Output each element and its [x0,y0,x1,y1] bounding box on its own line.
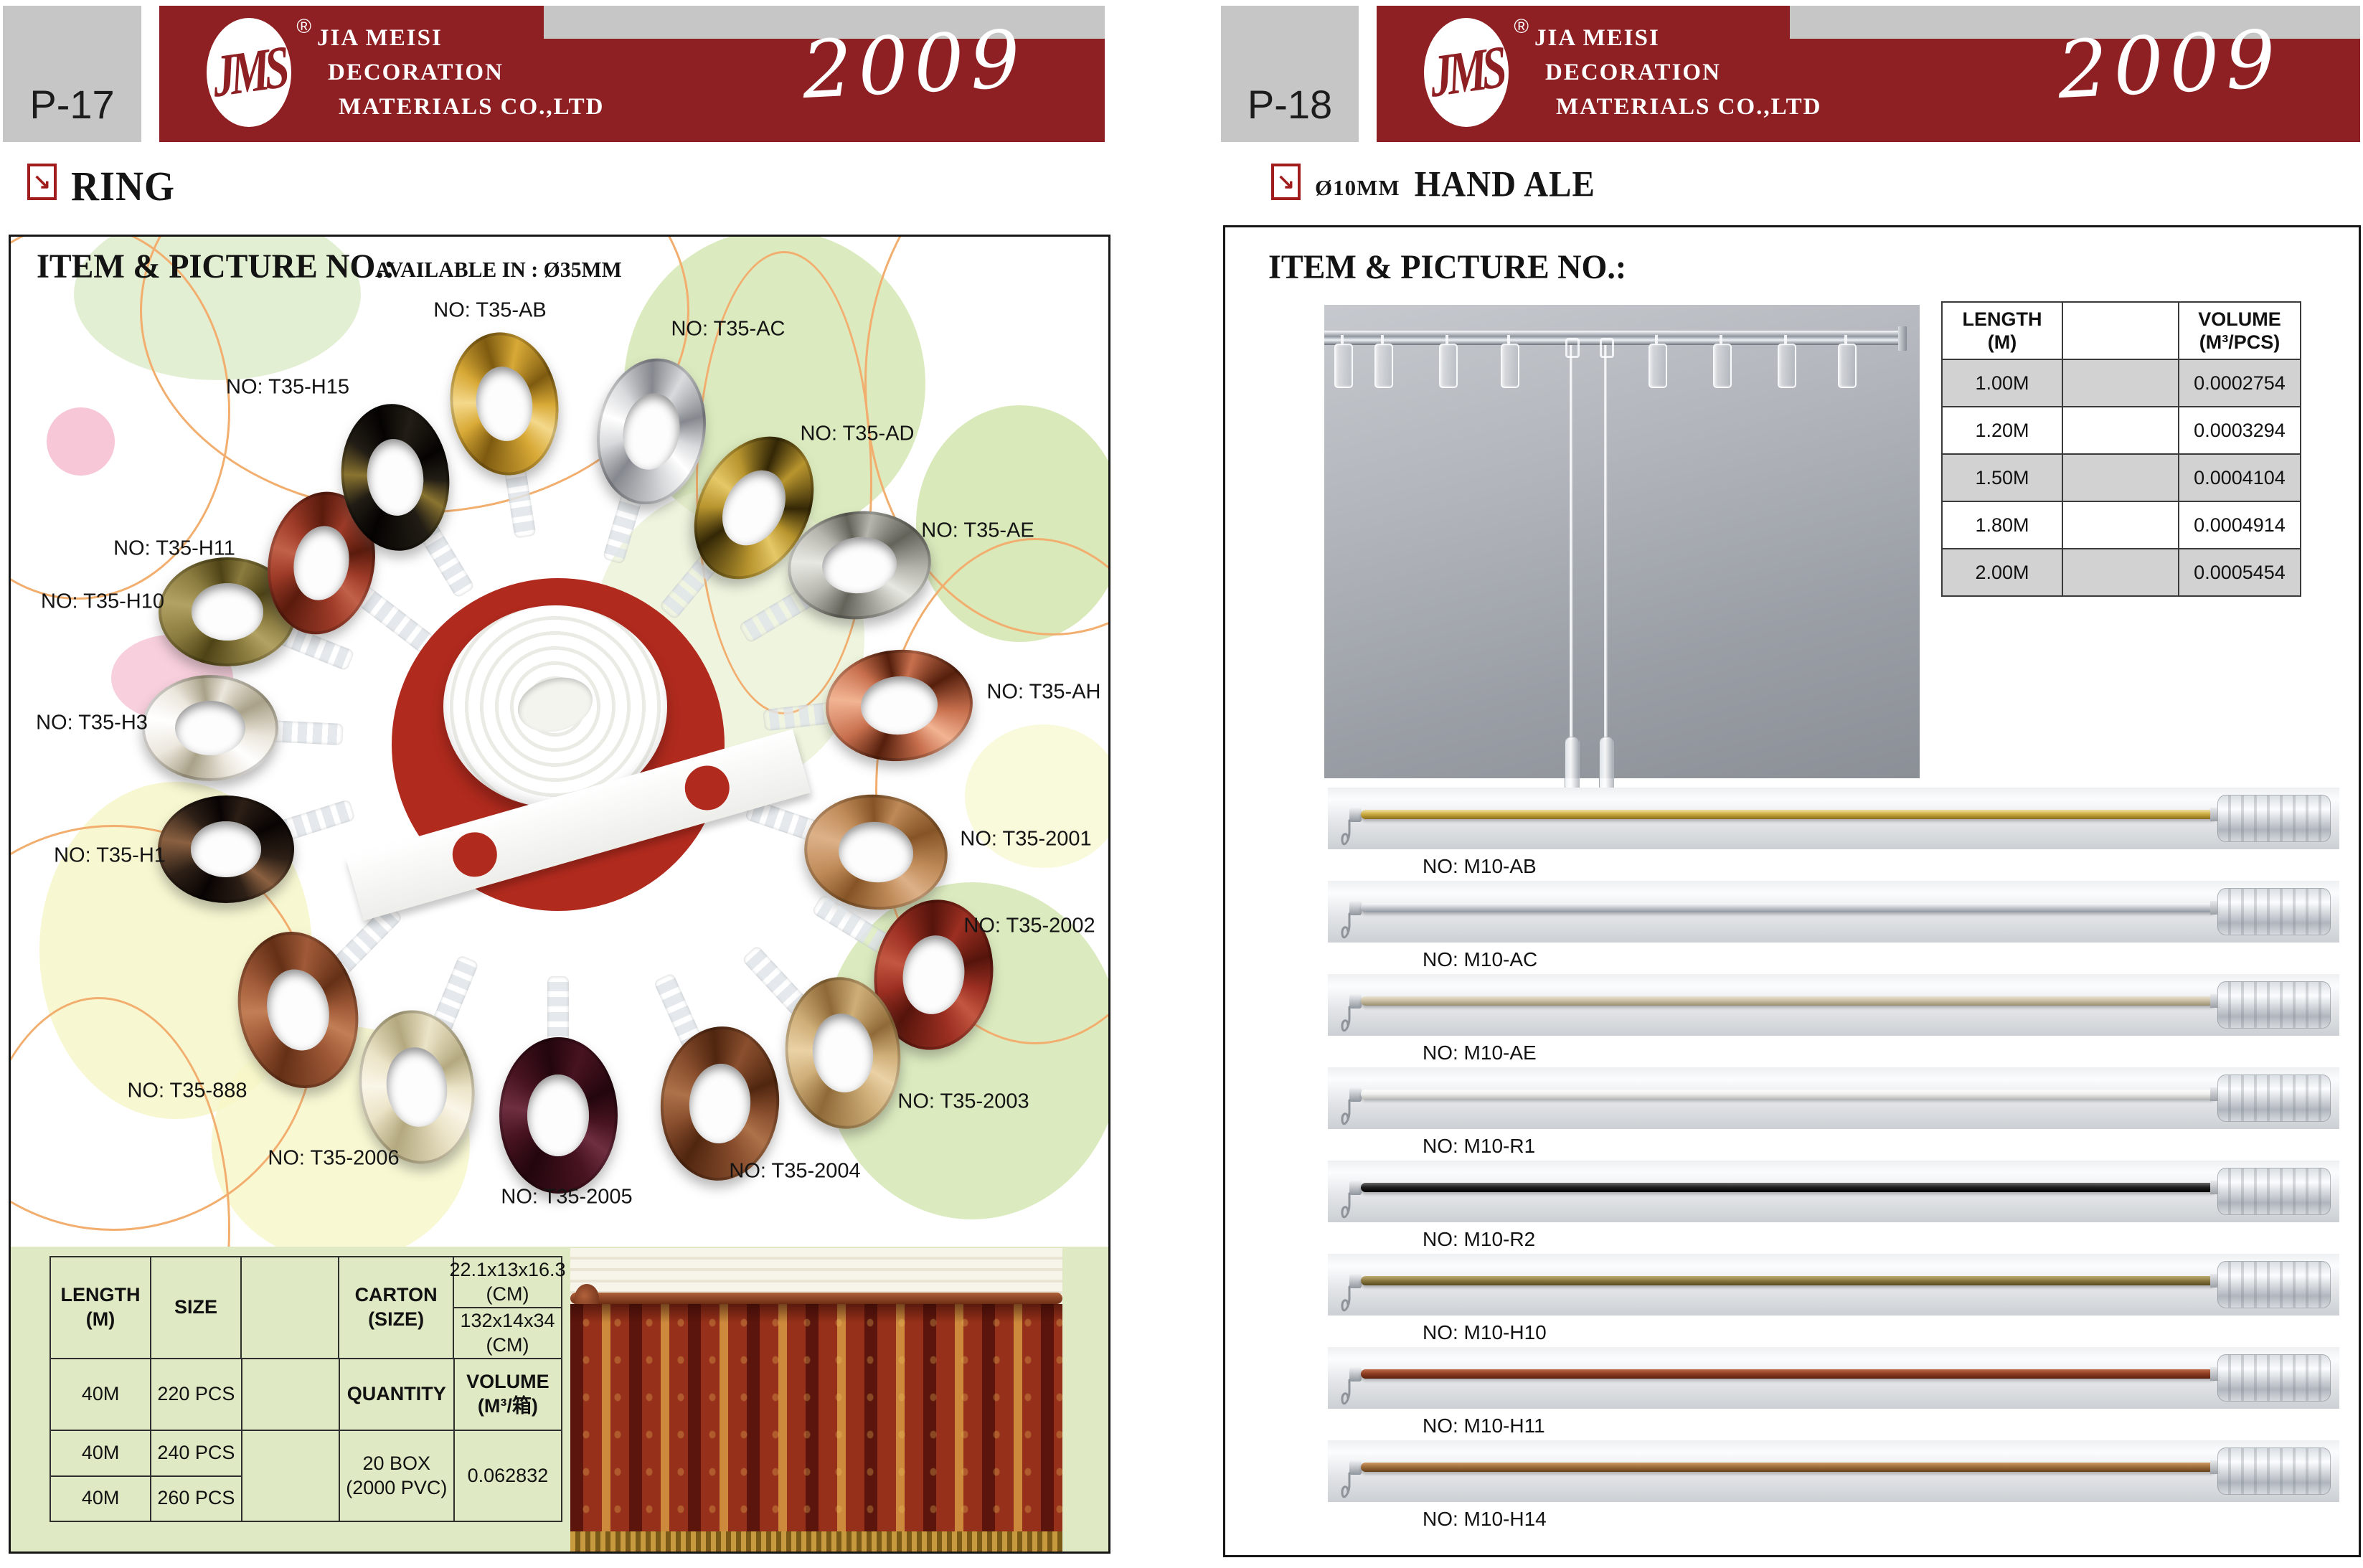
empty-cell [2062,406,2178,453]
ring-label: NO: T35-H11 [113,537,235,561]
registered-mark-icon: ® [296,15,311,38]
rod-label: NO: M10-R2 [1423,1228,1535,1251]
cell-length: 40M [51,1358,150,1430]
glider-hook [1713,344,1732,388]
rod-photo-strip [1328,881,2339,943]
panel-title: ITEM & PICTURE NO.: [1268,247,1626,287]
rod-item: NO: M10-AB [1328,788,2339,881]
metal-hook-icon [1339,1192,1358,1229]
curtain-photo [570,1248,1062,1552]
metal-hook-icon [1339,1379,1358,1416]
handale-panel: ITEM & PICTURE NO.: LENGTH (M) VOLUME (M… [1223,225,2361,1557]
metal-hook-icon [1339,912,1358,950]
cell-volume: 0.0003294 [2178,406,2300,453]
col-header-carton: CARTON (SIZE) [338,1257,453,1358]
rod-item: NO: M10-R2 [1328,1161,2339,1254]
logo-monogram: JMS [211,33,287,111]
logo-oval-icon: JMS [1424,18,1509,127]
metal-hook-icon [1339,819,1358,856]
registered-mark-icon: ® [1514,15,1529,38]
rod-photo-strip [1328,1254,2339,1316]
tape-photo [392,578,725,911]
ring-label: NO: T35-AC [671,318,785,341]
ring-label: NO: T35-H1 [54,844,166,868]
cell-size: 220 PCS [150,1358,240,1430]
glider-hook [1501,344,1519,388]
cell-size-stack: 240 PCS 260 PCS [150,1430,240,1521]
arrow-icon: ↘ [27,164,57,200]
acrylic-handle [2217,1261,2331,1308]
company-line: DECORATION [317,56,605,90]
company-line: MATERIALS CO.,LTD [1534,90,1822,125]
rod-shaft [1361,1183,2216,1192]
spec-band: LENGTH (M) SIZE CARTON (SIZE) 22.1x13x16… [11,1247,1108,1552]
section-header-ring: ↘ RING [27,164,175,204]
brand-logo: JMS ® [207,18,301,130]
company-line: MATERIALS CO.,LTD [317,90,605,125]
glider-hook [1778,344,1796,388]
track-wand-photo [1324,305,1920,778]
metal-hook-icon [1339,1472,1358,1509]
ring-label: NO: T35-AH [986,681,1100,704]
curtain-fabric [570,1304,1062,1531]
empty-cell [2062,303,2178,359]
ring-label: NO: T35-H3 [36,712,148,735]
ring-label: NO: T35-2006 [268,1147,399,1171]
logo-monogram: JMS [1428,33,1504,111]
rod-photo-strip [1328,1347,2339,1409]
ring-label: NO: T35-888 [127,1080,247,1103]
ring-label: NO: T35-2003 [897,1090,1029,1114]
catalog-year: 2009 [800,13,1028,116]
col-header-length: LENGTH (M) [51,1257,150,1358]
curtain-fringe [570,1531,1062,1552]
cell-length-stack: 40M 40M [51,1430,150,1521]
cell-length: 1.80M [1943,501,2062,548]
acrylic-handle [2217,888,2331,935]
length-volume-table: LENGTH (M) VOLUME (M³/PCS) 1.00M 0.00027… [1941,301,2301,597]
panel-subtitle: AVAILABLE IN : Ø35MM [375,257,622,283]
panel-title: ITEM & PICTURE NO.: [37,247,395,286]
rod-label: NO: M10-H14 [1423,1508,1547,1531]
metal-hook-icon [1339,1006,1358,1043]
company-line: JIA MEISI [317,22,605,56]
cell-length: 1.00M [1943,359,2062,406]
glider-hook [1649,344,1667,388]
cell-volume: 0.0002754 [2178,359,2300,406]
acrylic-handle [2217,1168,2331,1215]
company-line: DECORATION [1534,56,1822,90]
cell-length: 1.20M [1943,406,2062,453]
rod-item: NO: M10-H14 [1328,1440,2339,1534]
cell-length: 40M [51,1475,150,1521]
rod-photo-strip [1328,788,2339,849]
header-band-right: JMS ® JIA MEISI DECORATION MATERIALS CO.… [1377,6,2360,142]
col-header-volume: VOLUME (M³/PCS) [2178,303,2300,359]
glider-hook [1838,344,1857,388]
ring-label: NO: T35-H15 [226,376,349,400]
carton-size-cell: 22.1x13x16.3 (CM) 132x14x34 (CM) [453,1257,561,1358]
ring-panel: ITEM & PICTURE NO.: AVAILABLE IN : Ø35MM… [9,235,1110,1554]
section-diameter: Ø10MM [1315,164,1400,201]
rod-item: NO: M10-AC [1328,881,2339,974]
cell-volume: 0.0005454 [2178,548,2300,595]
rod-item: NO: M10-H11 [1328,1347,2339,1440]
empty-cell [2062,548,2178,595]
glider-hook [1334,344,1353,388]
cell-size: 260 PCS [151,1475,240,1521]
cell-size: 240 PCS [151,1431,240,1475]
glider-hook [1439,344,1458,388]
rod-label: NO: M10-R1 [1423,1135,1535,1158]
col-header-quantity: QUANTITY [339,1358,453,1430]
rod-shaft [1361,810,2216,819]
empty-cell [241,1358,339,1430]
company-name: JIA MEISI DECORATION MATERIALS CO.,LTD [1534,22,1822,125]
glider-hook [1374,344,1393,388]
track-rail-endcap [1898,326,1907,351]
clear-wand [1570,345,1573,740]
acrylic-handle [2217,981,2331,1029]
acrylic-handle [2217,795,2331,842]
rod-photo-strip [1328,1161,2339,1222]
catalog-year: 2009 [2055,13,2283,116]
acrylic-handle [2217,1447,2331,1495]
ring-label: NO: T35-AD [800,422,914,446]
page-number-left: P-17 [3,6,141,142]
packing-table: LENGTH (M) SIZE CARTON (SIZE) 22.1x13x16… [49,1256,562,1522]
rod-item: NO: M10-AE [1328,974,2339,1067]
section-header-handale: ↘ Ø10MM HAND ALE [1271,164,1595,201]
metal-hook-icon [1339,1285,1358,1323]
rod-photo-strip [1328,1440,2339,1502]
rod-label: NO: M10-H11 [1423,1414,1545,1437]
cell-volume: 0.0004914 [2178,501,2300,548]
ring-label: NO: T35-2004 [729,1160,860,1184]
brand-logo: JMS ® [1424,18,1519,130]
cell-quantity: 20 BOX (2000 PVC) [339,1430,453,1521]
ring-label: NO: T35-AB [433,299,546,323]
rod-label: NO: M10-H10 [1423,1321,1547,1344]
metal-hook-icon [1339,1099,1358,1136]
cell-length: 1.50M [1943,453,2062,501]
col-header-volume: VOLUME (M³/箱) [453,1358,561,1430]
rod-item: NO: M10-R1 [1328,1067,2339,1161]
section-title: HAND ALE [1415,164,1595,203]
rod-shaft [1361,996,2216,1006]
acrylic-handle [2217,1354,2331,1402]
ring-label: NO: T35-H10 [41,590,164,614]
cell-volume: 0.0004104 [2178,453,2300,501]
col-header-size: SIZE [150,1257,240,1358]
cell-volume: 0.062832 [453,1430,561,1521]
ring-image [158,795,294,903]
arrow-icon: ↘ [1271,164,1301,200]
rod-label: NO: M10-AC [1423,948,1537,971]
empty-cell [2062,453,2178,501]
ring-label: NO: T35-2002 [963,915,1095,938]
carton-size-top: 22.1x13x16.3 (CM) [454,1257,561,1307]
empty-cell [240,1257,338,1358]
rod-shaft [1361,1276,2216,1285]
rod-shaft [1361,1369,2216,1379]
rod-label: NO: M10-AB [1423,855,1537,878]
page-number-right: P-18 [1221,6,1359,142]
carton-size-bottom: 132x14x34 (CM) [454,1307,561,1358]
clear-wand [1604,345,1608,740]
ring-image [142,675,278,781]
rod-shaft [1361,1463,2216,1472]
ring-label: NO: T35-AE [921,519,1034,543]
rod-photo-strip [1328,1067,2339,1129]
empty-cell [241,1430,339,1521]
section-title: RING [71,164,175,207]
ceiling [570,1248,1062,1298]
cell-length: 2.00M [1943,548,2062,595]
acrylic-handle [2217,1075,2331,1122]
rod-item: NO: M10-H10 [1328,1254,2339,1347]
ring-label: NO: T35-2001 [960,828,1091,851]
rod-shaft [1361,1090,2216,1099]
empty-cell [2062,501,2178,548]
rod-label: NO: M10-AE [1423,1042,1537,1064]
curtain-rod [570,1293,1062,1304]
company-name: JIA MEISI DECORATION MATERIALS CO.,LTD [317,22,605,125]
col-header-length: LENGTH (M) [1943,303,2062,359]
rod-photo-strip [1328,974,2339,1036]
rod-shaft [1361,903,2216,912]
ring-label: NO: T35-2005 [501,1186,632,1209]
company-line: JIA MEISI [1534,22,1822,56]
ring-image [499,1037,618,1194]
logo-oval-icon: JMS [207,18,291,127]
cell-length: 40M [51,1431,150,1475]
empty-cell [2062,359,2178,406]
header-band-left: JMS ® JIA MEISI DECORATION MATERIALS CO.… [159,6,1105,142]
